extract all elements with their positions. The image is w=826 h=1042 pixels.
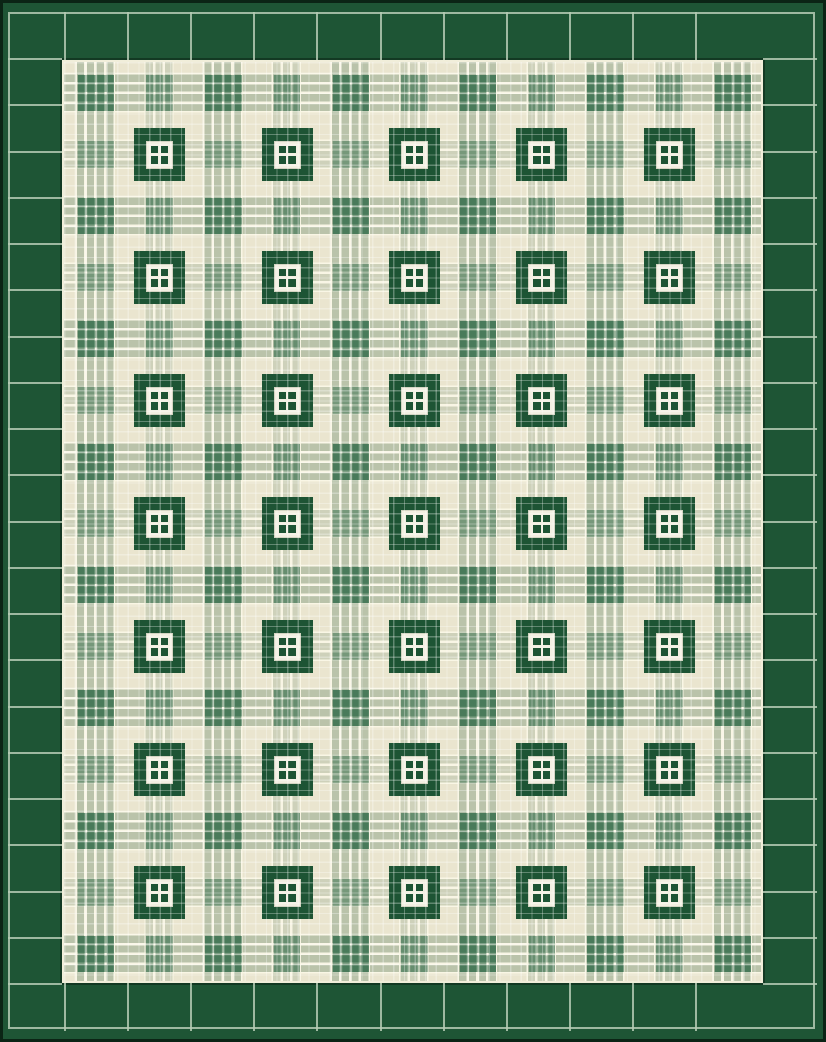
windowpane-window [533, 146, 550, 164]
windowpane-block [389, 497, 440, 550]
check-block-strong [205, 690, 241, 726]
windowpane-window [661, 515, 678, 533]
border-tile-seam [316, 983, 318, 1031]
check-block-strong [587, 198, 623, 234]
check-block-light [78, 510, 114, 537]
windowpane-frame [528, 756, 555, 784]
windowpane-window [151, 269, 168, 287]
border-tile-seam [763, 197, 817, 199]
window-pane [288, 279, 295, 287]
window-pane [671, 525, 678, 533]
window-pane [161, 884, 168, 892]
check-block-medium [656, 75, 683, 111]
windowpane-window [406, 761, 423, 779]
check-block-medium [401, 567, 428, 603]
windowpane-window [279, 761, 296, 779]
window-pane [406, 894, 413, 902]
check-block-strong [715, 813, 751, 849]
border-tile-seam [380, 983, 382, 1031]
window-pane [279, 525, 286, 533]
windowpane-frame [656, 510, 683, 538]
window-pane [161, 402, 168, 410]
check-block-medium [656, 690, 683, 726]
check-block-light [715, 879, 751, 906]
check-block-medium [146, 75, 173, 111]
check-block-light [333, 510, 369, 537]
window-pane [288, 894, 295, 902]
window-pane [543, 525, 550, 533]
windowpane-window [406, 638, 423, 656]
window-pane [671, 771, 678, 779]
windowpane-frame [401, 387, 428, 415]
windowpane-block [389, 620, 440, 673]
windowpane-frame [146, 756, 173, 784]
window-pane [279, 392, 286, 400]
windowpane-block [644, 866, 695, 919]
check-block-light [715, 264, 751, 291]
border-tile-seam [763, 983, 817, 985]
check-block-strong [78, 321, 114, 357]
windowpane-block [516, 251, 567, 304]
check-block-light [205, 633, 241, 660]
windowpane-block [262, 128, 313, 181]
check-block-medium [656, 813, 683, 849]
check-block-strong [587, 690, 623, 726]
windowpane-window [151, 761, 168, 779]
window-pane [661, 638, 668, 646]
window-pane [543, 402, 550, 410]
border-tile-seam [763, 613, 817, 615]
window-pane [279, 269, 286, 277]
windowpane-block [262, 374, 313, 427]
windowpane-window [279, 515, 296, 533]
window-pane [661, 269, 668, 277]
border-tile-seam [569, 12, 571, 60]
border-tile-seam [8, 844, 62, 846]
check-block-strong [587, 567, 623, 603]
border-tile-seam [253, 12, 255, 60]
check-block-medium [274, 75, 301, 111]
windowpane-frame [146, 387, 173, 415]
border-tile-seam [8, 798, 62, 800]
check-block-medium [401, 321, 428, 357]
window-pane [533, 515, 540, 523]
check-block-medium [656, 444, 683, 480]
window-pane [161, 392, 168, 400]
check-block-medium [146, 444, 173, 480]
check-block-strong [587, 444, 623, 480]
check-block-strong [333, 321, 369, 357]
window-pane [279, 884, 286, 892]
window-pane [288, 648, 295, 656]
border-tile-seam [763, 891, 817, 893]
windowpane-window [279, 146, 296, 164]
windowpane-frame [656, 633, 683, 661]
check-block-medium [656, 936, 683, 972]
windowpane-block [516, 743, 567, 796]
window-pane [416, 771, 423, 779]
windowpane-block [644, 497, 695, 550]
windowpane-block [389, 743, 440, 796]
windowpane-block [262, 743, 313, 796]
windowpane-block [516, 866, 567, 919]
windowpane-window [151, 146, 168, 164]
windowpane-block [134, 497, 185, 550]
border-tile-seam [763, 151, 817, 153]
window-pane [416, 392, 423, 400]
window-pane [543, 884, 550, 892]
check-block-light [333, 141, 369, 168]
border-tile-seam [763, 567, 817, 569]
windowpane-block [644, 374, 695, 427]
window-pane [288, 156, 295, 164]
window-pane [661, 392, 668, 400]
border-tile-seam [506, 983, 508, 1031]
window-pane [416, 761, 423, 769]
window-pane [406, 392, 413, 400]
border-tile-seam [8, 937, 62, 939]
border-tile-seam [8, 151, 62, 153]
window-pane [279, 146, 286, 154]
windowpane-block [516, 128, 567, 181]
check-block-strong [715, 690, 751, 726]
windowpane-frame [401, 141, 428, 169]
check-block-strong [78, 813, 114, 849]
border-tile-seam [632, 983, 634, 1031]
window-pane [533, 279, 540, 287]
window-pane [161, 279, 168, 287]
windowpane-block [516, 497, 567, 550]
window-pane [533, 648, 540, 656]
window-pane [406, 648, 413, 656]
check-block-strong [715, 936, 751, 972]
window-pane [161, 156, 168, 164]
check-block-medium [274, 198, 301, 234]
border-tile-seam [443, 12, 445, 60]
window-pane [543, 279, 550, 287]
check-block-strong [460, 813, 496, 849]
window-pane [288, 638, 295, 646]
check-block-light [333, 264, 369, 291]
windowpane-frame [401, 756, 428, 784]
window-pane [661, 156, 668, 164]
windowpane-block [134, 374, 185, 427]
border-tile-seam [8, 567, 62, 569]
window-pane [543, 761, 550, 769]
window-pane [151, 638, 158, 646]
window-pane [161, 269, 168, 277]
check-block-strong [460, 198, 496, 234]
border-tile-seam [763, 659, 817, 661]
check-block-strong [333, 690, 369, 726]
check-block-medium [146, 198, 173, 234]
window-pane [416, 279, 423, 287]
border-tile-seam [763, 798, 817, 800]
window-pane [279, 156, 286, 164]
window-pane [288, 269, 295, 277]
windowpane-window [533, 392, 550, 410]
window-pane [661, 279, 668, 287]
check-block-medium [529, 444, 556, 480]
window-pane [661, 525, 668, 533]
border-tile-seam [316, 12, 318, 60]
border-tile-seam [380, 12, 382, 60]
check-block-medium [146, 321, 173, 357]
window-pane [533, 269, 540, 277]
check-block-light [78, 264, 114, 291]
border-tile-seam [190, 12, 192, 60]
check-block-medium [401, 444, 428, 480]
windowpane-window [151, 638, 168, 656]
check-block-light [587, 141, 623, 168]
border-tile-seam [763, 521, 817, 523]
windowpane-frame [656, 141, 683, 169]
check-block-strong [333, 444, 369, 480]
window-pane [533, 156, 540, 164]
check-block-light [587, 756, 623, 783]
window-pane [288, 525, 295, 533]
windowpane-frame [274, 879, 301, 907]
window-pane [416, 402, 423, 410]
window-pane [543, 515, 550, 523]
windowpane-frame [274, 756, 301, 784]
check-block-light [205, 510, 241, 537]
border-tile-seam [695, 12, 697, 60]
check-block-strong [587, 936, 623, 972]
check-block-strong [460, 75, 496, 111]
windowpane-frame [656, 264, 683, 292]
window-pane [661, 515, 668, 523]
check-block-light [205, 756, 241, 783]
window-pane [533, 884, 540, 892]
windowpane-window [151, 515, 168, 533]
check-block-medium [401, 198, 428, 234]
window-pane [671, 761, 678, 769]
window-pane [151, 279, 158, 287]
window-pane [543, 146, 550, 154]
windowpane-frame [274, 510, 301, 538]
window-pane [671, 894, 678, 902]
windowpane-frame [401, 879, 428, 907]
window-pane [279, 515, 286, 523]
check-block-light [460, 510, 496, 537]
window-pane [543, 638, 550, 646]
check-block-light [587, 633, 623, 660]
check-block-strong [205, 444, 241, 480]
windowpane-window [661, 269, 678, 287]
window-pane [661, 146, 668, 154]
windowpane-block [644, 620, 695, 673]
windowpane-window [406, 269, 423, 287]
check-block-light [587, 264, 623, 291]
check-block-medium [529, 75, 556, 111]
border-tile-seam [8, 382, 62, 384]
check-block-light [333, 879, 369, 906]
window-pane [288, 884, 295, 892]
check-block-light [78, 633, 114, 660]
border-tile-seam [8, 613, 62, 615]
windowpane-block [262, 497, 313, 550]
check-block-light [460, 264, 496, 291]
check-block-light [205, 387, 241, 414]
border-tile-seam [763, 428, 817, 430]
check-block-medium [401, 75, 428, 111]
window-pane [151, 156, 158, 164]
window-pane [416, 894, 423, 902]
window-pane [671, 884, 678, 892]
border-tile-seam [8, 243, 62, 245]
windowpane-frame [528, 264, 555, 292]
windowpane-frame [656, 387, 683, 415]
check-block-light [205, 879, 241, 906]
border-tile-seam [8, 428, 62, 430]
check-block-medium [274, 813, 301, 849]
windowpane-window [151, 392, 168, 410]
check-block-light [587, 387, 623, 414]
check-block-medium [146, 690, 173, 726]
windowpane-window [533, 269, 550, 287]
window-pane [661, 761, 668, 769]
check-block-strong [78, 936, 114, 972]
windowpane-window [533, 761, 550, 779]
check-block-strong [460, 567, 496, 603]
check-block-strong [205, 936, 241, 972]
windowpane-frame [528, 387, 555, 415]
check-block-medium [274, 936, 301, 972]
border-tile-seam [8, 983, 62, 985]
windowpane-frame [528, 510, 555, 538]
check-block-strong [460, 444, 496, 480]
windowpane-frame [274, 387, 301, 415]
border-tile-seam [8, 289, 62, 291]
window-pane [151, 392, 158, 400]
border-tile-seam [8, 197, 62, 199]
border-tile-seam [763, 706, 817, 708]
window-pane [279, 894, 286, 902]
windowpane-block [516, 620, 567, 673]
border-tile-seam [763, 104, 817, 106]
check-block-medium [146, 813, 173, 849]
window-pane [279, 279, 286, 287]
check-block-light [78, 141, 114, 168]
check-block-strong [333, 75, 369, 111]
window-pane [279, 402, 286, 410]
window-pane [533, 894, 540, 902]
border-tile-seam [8, 521, 62, 523]
windowpane-frame [401, 264, 428, 292]
check-block-strong [587, 813, 623, 849]
window-pane [416, 156, 423, 164]
check-block-strong [78, 567, 114, 603]
check-block-strong [205, 321, 241, 357]
check-block-light [715, 510, 751, 537]
check-block-strong [460, 321, 496, 357]
windowpane-window [279, 884, 296, 902]
check-block-strong [333, 813, 369, 849]
check-block-medium [656, 321, 683, 357]
border-tile-seam [8, 891, 62, 893]
window-pane [543, 648, 550, 656]
check-block-light [78, 387, 114, 414]
window-pane [671, 156, 678, 164]
border-tile-seam [506, 12, 508, 60]
windowpane-block [389, 866, 440, 919]
border-tile-seam [763, 937, 817, 939]
window-pane [406, 156, 413, 164]
check-block-light [460, 387, 496, 414]
check-block-strong [333, 936, 369, 972]
windowpane-frame [146, 633, 173, 661]
windowpane-frame [146, 264, 173, 292]
windowpane-window [661, 884, 678, 902]
window-pane [288, 515, 295, 523]
window-pane [533, 761, 540, 769]
check-block-strong [205, 567, 241, 603]
border-tile-seam [190, 983, 192, 1031]
window-pane [161, 761, 168, 769]
check-block-light [78, 756, 114, 783]
window-pane [151, 146, 158, 154]
windowpane-block [134, 251, 185, 304]
check-block-strong [205, 75, 241, 111]
check-block-medium [401, 936, 428, 972]
check-block-light [333, 387, 369, 414]
window-pane [161, 146, 168, 154]
windowpane-frame [146, 879, 173, 907]
check-block-strong [460, 936, 496, 972]
windowpane-block [389, 128, 440, 181]
check-block-light [460, 756, 496, 783]
check-block-light [460, 633, 496, 660]
border-tile-seam [8, 104, 62, 106]
windowpane-block [262, 620, 313, 673]
check-block-medium [146, 936, 173, 972]
window-pane [406, 638, 413, 646]
windowpane-window [279, 638, 296, 656]
window-pane [543, 392, 550, 400]
window-pane [671, 392, 678, 400]
check-block-medium [146, 567, 173, 603]
check-block-strong [205, 198, 241, 234]
windowpane-block [262, 251, 313, 304]
check-block-strong [78, 75, 114, 111]
window-pane [416, 269, 423, 277]
border-tile-seam [8, 752, 62, 754]
windowpane-frame [274, 264, 301, 292]
border-tile-seam [64, 12, 66, 60]
window-pane [279, 771, 286, 779]
windowpane-frame [146, 141, 173, 169]
window-pane [406, 771, 413, 779]
check-block-strong [205, 813, 241, 849]
windowpane-frame [528, 879, 555, 907]
window-pane [661, 894, 668, 902]
check-block-strong [587, 75, 623, 111]
check-block-strong [460, 690, 496, 726]
windowpane-window [661, 761, 678, 779]
window-pane [671, 146, 678, 154]
check-block-medium [274, 321, 301, 357]
window-pane [406, 269, 413, 277]
window-pane [406, 279, 413, 287]
window-pane [151, 771, 158, 779]
border-tile-seam [8, 336, 62, 338]
window-pane [288, 771, 295, 779]
check-block-medium [401, 813, 428, 849]
windowpane-frame [656, 756, 683, 784]
check-block-strong [715, 444, 751, 480]
check-block-medium [274, 690, 301, 726]
